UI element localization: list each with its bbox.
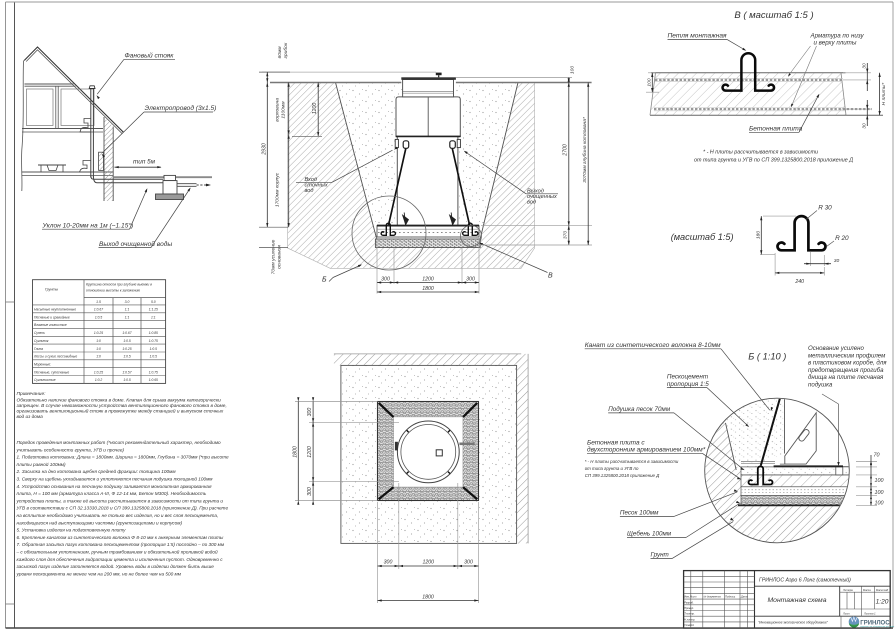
svg-text:Электропровод (3х1.5): Электропровод (3х1.5) [145, 104, 217, 112]
svg-text:Б ( 1:10 ): Б ( 1:10 ) [748, 352, 786, 362]
svg-text:1:0.5: 1:0.5 [123, 378, 130, 382]
svg-text:70мм усиление: 70мм усиление [271, 239, 277, 274]
svg-text:№ документа: № документа [704, 595, 722, 599]
svg-text:100: 100 [875, 490, 884, 496]
svg-text:от типа грунта и УГВ по: от типа грунта и УГВ по [585, 466, 639, 471]
svg-text:подушка: подушка [808, 382, 833, 389]
svg-text:Утверд.: Утверд. [684, 623, 694, 627]
svg-text:Подпись: Подпись [725, 595, 736, 599]
svg-text:Основание усилено: Основание усилено [808, 345, 864, 352]
svg-text:плита, Н = 100 мм (арматура кл: плита, Н = 100 мм (арматура класса А-III… [17, 491, 207, 496]
svg-text:засыпкой пазух изделие заполня: засыпкой пазух изделие заполняется водой… [16, 563, 215, 569]
svg-text:Порядок проведения монтажных р: Порядок проведения монтажных работ (*нос… [17, 439, 222, 445]
svg-text:300: 300 [466, 277, 475, 283]
svg-text:отношении высоты к заложению: отношении высоты к заложению [86, 289, 140, 293]
svg-text:и верху плиты: и верху плиты [814, 40, 857, 47]
svg-text:2930: 2930 [262, 143, 268, 156]
svg-text:300: 300 [384, 560, 393, 566]
svg-text:основания: основания [278, 245, 283, 269]
svg-text:1:1.25: 1:1.25 [149, 308, 158, 312]
svg-text:1:0.25: 1:0.25 [122, 347, 131, 351]
svg-text:1.5: 1.5 [96, 300, 101, 304]
svg-text:двухсторонним армированием 100: двухсторонним армированием 100мм* [587, 446, 706, 454]
svg-text:ГРИНЛОС Аэро 6 Лонг (самотеч: ГРИНЛОС Аэро 6 Лонг (самотечный) [759, 576, 851, 583]
svg-text:металлическим профилем: металлическим профилем [808, 352, 886, 359]
svg-text:Листов 1: Листов 1 [863, 612, 876, 616]
svg-text:Песчаные и гравийные: Песчаные и гравийные [34, 315, 70, 319]
svg-text:1:0.5: 1:0.5 [150, 355, 157, 359]
svg-text:Пескоцемент: Пескоцемент [667, 374, 708, 381]
svg-text:1:0.65: 1:0.65 [149, 378, 158, 382]
svg-text:от типа грунта и УГВ по СП 399: от типа грунта и УГВ по СП 399.1325800.2… [694, 158, 853, 164]
svg-text:организовать вентиляционный ст: организовать вентиляционный стояк в пром… [17, 407, 224, 414]
svg-text:30: 30 [861, 123, 867, 129]
svg-text:Лист: Лист [842, 612, 851, 616]
svg-text:учитывать особенности грунта,: учитывать особенности грунта, УГВ и проч… [16, 447, 125, 452]
svg-text:Б: Б [322, 277, 327, 284]
svg-text:Насыпные неуплотненные: Насыпные неуплотненные [34, 308, 76, 312]
svg-text:* - Н плиты рассчитывается в з: * - Н плиты рассчитывается в зависимости [585, 459, 679, 464]
svg-text:грибок: грибок [283, 42, 289, 58]
svg-text:Подушка песок 70мм: Подушка песок 70мм [608, 405, 671, 413]
svg-text:Т.контр.: Т.контр. [684, 612, 695, 616]
svg-text:(масштаб 1:5): (масштаб 1:5) [671, 232, 734, 242]
svg-text:* - Н плиты рассчитывается в з: * - Н плиты рассчитывается в зависимости [703, 150, 818, 156]
svg-text:1. Подготовка котлована: Длина: 1. Подготовка котлована: Длина = 1800мм.… [17, 455, 230, 460]
svg-text:370: 370 [563, 231, 569, 239]
svg-text:вод: вод [305, 188, 314, 194]
svg-text:4. Устройство основания на пе: 4. Устройство основания на песчаную поду… [17, 483, 213, 489]
svg-text:– с обязательным уплотнением,: – с обязательным уплотнением, ручным тра… [16, 549, 218, 555]
svg-text:1:1: 1:1 [125, 308, 130, 312]
svg-text:1800: 1800 [422, 286, 434, 292]
svg-text:1:1: 1:1 [151, 315, 156, 319]
svg-text:Петля монтажная: Петля монтажная [668, 33, 728, 40]
svg-text:1800: 1800 [292, 446, 298, 458]
svg-text:R 20: R 20 [835, 235, 849, 242]
svg-text:каждого слоя для обеспечения г: каждого слоя для обеспечения гидратации … [17, 557, 224, 562]
svg-text:Н плиты*: Н плиты* [881, 82, 887, 106]
svg-text:7. Обратная засыпка пазух котл: 7. Обратная засыпка пазух котлована песк… [17, 541, 225, 547]
svg-text:1200: 1200 [312, 103, 318, 115]
svg-text:1:0.2: 1:0.2 [95, 378, 102, 382]
svg-text:3.0: 3.0 [125, 300, 130, 304]
svg-text:1:0.25: 1:0.25 [94, 331, 103, 335]
svg-text:Уклон 10-20мм на 1м (~1.15°): Уклон 10-20мм на 1м (~1.15°) [42, 221, 134, 229]
svg-text:Примечание:: Примечание: [17, 391, 47, 397]
svg-text:Разраб.: Разраб. [684, 600, 694, 604]
svg-text:УГВ в соответствии с СП 32.133: УГВ в соответствии с СП 32.13330.2018 и … [17, 506, 229, 511]
svg-text:300: 300 [307, 408, 313, 417]
svg-text:уровня пескоцемента не менее ч: уровня пескоцемента не менее чем на 200 … [16, 571, 182, 576]
svg-text:СП 399.1325800.2018 приложение: СП 399.1325800.2018 приложение Д [585, 473, 660, 478]
svg-text:100: 100 [646, 78, 652, 86]
svg-text:Песок 100мм: Песок 100мм [620, 510, 659, 517]
svg-text:Арматура по низу: Арматура по низу [810, 33, 865, 40]
svg-text:1100мм: 1100мм [281, 101, 287, 119]
svg-text:1:0.5: 1:0.5 [123, 339, 130, 343]
svg-text:30: 30 [861, 63, 867, 69]
svg-text:1200: 1200 [307, 446, 313, 458]
svg-text:Бетонная плита: Бетонная плита [749, 126, 803, 133]
svg-text:1:0.75: 1:0.75 [149, 339, 158, 343]
svg-text:240: 240 [794, 279, 804, 285]
svg-text:300: 300 [464, 560, 473, 566]
svg-text:1:0: 1:0 [96, 347, 101, 351]
svg-text:Канат из синтетического волокн: Канат из синтетического волокна 8-10мм [585, 342, 721, 349]
svg-text:Суглинок: Суглинок [34, 339, 49, 343]
svg-text:находящегося над выступающими: находящегося над выступающими частями (г… [17, 520, 183, 525]
svg-text:"Инновационное экологическое о: "Инновационное экологическое оборудовани… [758, 621, 829, 625]
svg-text:300: 300 [307, 487, 313, 496]
svg-text:1:1: 1:1 [125, 315, 130, 319]
svg-text:1:0.5: 1:0.5 [123, 355, 130, 359]
svg-text:100: 100 [875, 501, 884, 507]
svg-text:1:0.85: 1:0.85 [149, 331, 158, 335]
svg-text:Грунт: Грунт [651, 552, 669, 559]
svg-text:6. Крепление канатом из синтет: 6. Крепление канатом из синтетического в… [17, 535, 224, 540]
svg-text:1:0.67: 1:0.67 [122, 331, 131, 335]
svg-text:Литера: Литера [842, 588, 853, 592]
svg-text:Масштаб: Масштаб [876, 588, 889, 592]
svg-text:в пластиковом коробе, для: в пластиковом коробе, для [808, 360, 887, 367]
svg-text:пропорция 1:5: пропорция 1:5 [667, 381, 709, 388]
svg-text:2. Засыпка на дно котлована ще: 2. Засыпка на дно котлована щебня средне… [16, 468, 177, 474]
svg-text:Изм.Лист: Изм.Лист [684, 595, 697, 599]
svg-text:Крутизна откосов при глубине в: Крутизна откосов при глубине выемки в [86, 283, 152, 287]
svg-text:Влажные глинистые: Влажные глинистые [34, 323, 67, 327]
svg-text:5. Установка изделия на подгот: 5. Установка изделия на подготовленную п… [17, 528, 127, 533]
svg-text:2700: 2700 [563, 144, 569, 157]
svg-text:Супесь: Супесь [34, 331, 45, 335]
svg-text:R 30: R 30 [818, 205, 832, 212]
svg-text:плиты равной 100мм): плиты равной 100мм) [17, 461, 66, 467]
svg-text:1700мм корпус: 1700мм корпус [275, 172, 281, 207]
svg-text:1200: 1200 [422, 277, 434, 283]
svg-text:Песчаные, супесчаные: Песчаные, супесчаные [34, 370, 69, 374]
svg-text:100: 100 [570, 66, 576, 74]
svg-text:300: 300 [381, 277, 390, 283]
svg-text:Масса: Масса [863, 588, 871, 592]
svg-text:запрещен. В случае невозможнос: запрещен. В случае невозможности устройс… [16, 402, 227, 409]
svg-text:1:0.5: 1:0.5 [150, 347, 157, 351]
svg-text:1:0.67: 1:0.67 [94, 308, 103, 312]
svg-text:1:20: 1:20 [876, 599, 889, 606]
svg-text:Дата: Дата [740, 595, 748, 599]
svg-text:3. Сверху на щебень укладывает: 3. Сверху на щебень укладывается и уплот… [17, 476, 214, 482]
svg-text:Глина: Глина [34, 347, 43, 351]
svg-text:30: 30 [834, 258, 840, 264]
svg-text:Бетонная плита с: Бетонная плита с [587, 439, 645, 446]
svg-text:В ( масштаб 1:5 ): В ( масштаб 1:5 ) [734, 10, 813, 21]
svg-text:100: 100 [875, 478, 884, 484]
svg-text:устройства плиты, а также её в: устройства плиты, а также её высота расс… [16, 497, 224, 503]
svg-text:5.0: 5.0 [151, 300, 156, 304]
svg-text:180: 180 [755, 231, 761, 239]
svg-text:1:0.75: 1:0.75 [149, 370, 158, 374]
svg-text:вод: вод [527, 200, 536, 206]
svg-text:1:0.5: 1:0.5 [95, 315, 102, 319]
svg-text:Фановый стояк: Фановый стояк [125, 52, 175, 60]
svg-text:3070мм глубина котлована*: 3070мм глубина котлована* [582, 116, 588, 183]
svg-text:Обязательно наличие фанового с: Обязательно наличие фанового стояка в до… [17, 397, 222, 403]
svg-text:Моренные:: Моренные: [34, 362, 51, 366]
svg-text:вод из дома: вод из дома [17, 414, 44, 420]
svg-text:днища на плите песчаная: днища на плите песчаная [808, 374, 884, 381]
svg-text:1:0.25: 1:0.25 [94, 370, 103, 374]
svg-text:предотвращения прогиба: предотвращения прогиба [808, 367, 884, 374]
svg-text:тип 5м: тип 5м [133, 159, 156, 166]
svg-text:Лессы и сухие лессовидные: Лессы и сухие лессовидные [33, 355, 77, 359]
svg-text:60мм: 60мм [277, 46, 283, 59]
svg-text:1200: 1200 [423, 560, 435, 566]
svg-text:1:0.57: 1:0.57 [122, 370, 131, 374]
svg-text:горловина: горловина [276, 98, 281, 122]
svg-text:Щебень 100мм: Щебень 100мм [627, 530, 672, 538]
svg-text:Суглинистые: Суглинистые [34, 378, 56, 382]
svg-text:В: В [548, 273, 553, 280]
svg-text:Н.контр.: Н.контр. [684, 617, 695, 621]
svg-text:Провер.: Провер. [684, 606, 694, 610]
svg-text:1:0: 1:0 [96, 339, 101, 343]
svg-text:на всплытие необходимо учитыв: на всплытие необходимо учитывать не толь… [17, 513, 219, 518]
svg-text:1800: 1800 [422, 595, 434, 601]
svg-text:1:0: 1:0 [96, 355, 101, 359]
svg-text:Грунты: Грунты [45, 288, 58, 292]
svg-text:70: 70 [874, 453, 880, 459]
svg-text:водоочистное оборудование для: водоочистное оборудование для дома [860, 626, 895, 628]
svg-text:Выход очищенной воды: Выход очищенной воды [99, 240, 172, 248]
svg-text:Монтажная схема: Монтажная схема [768, 597, 827, 604]
